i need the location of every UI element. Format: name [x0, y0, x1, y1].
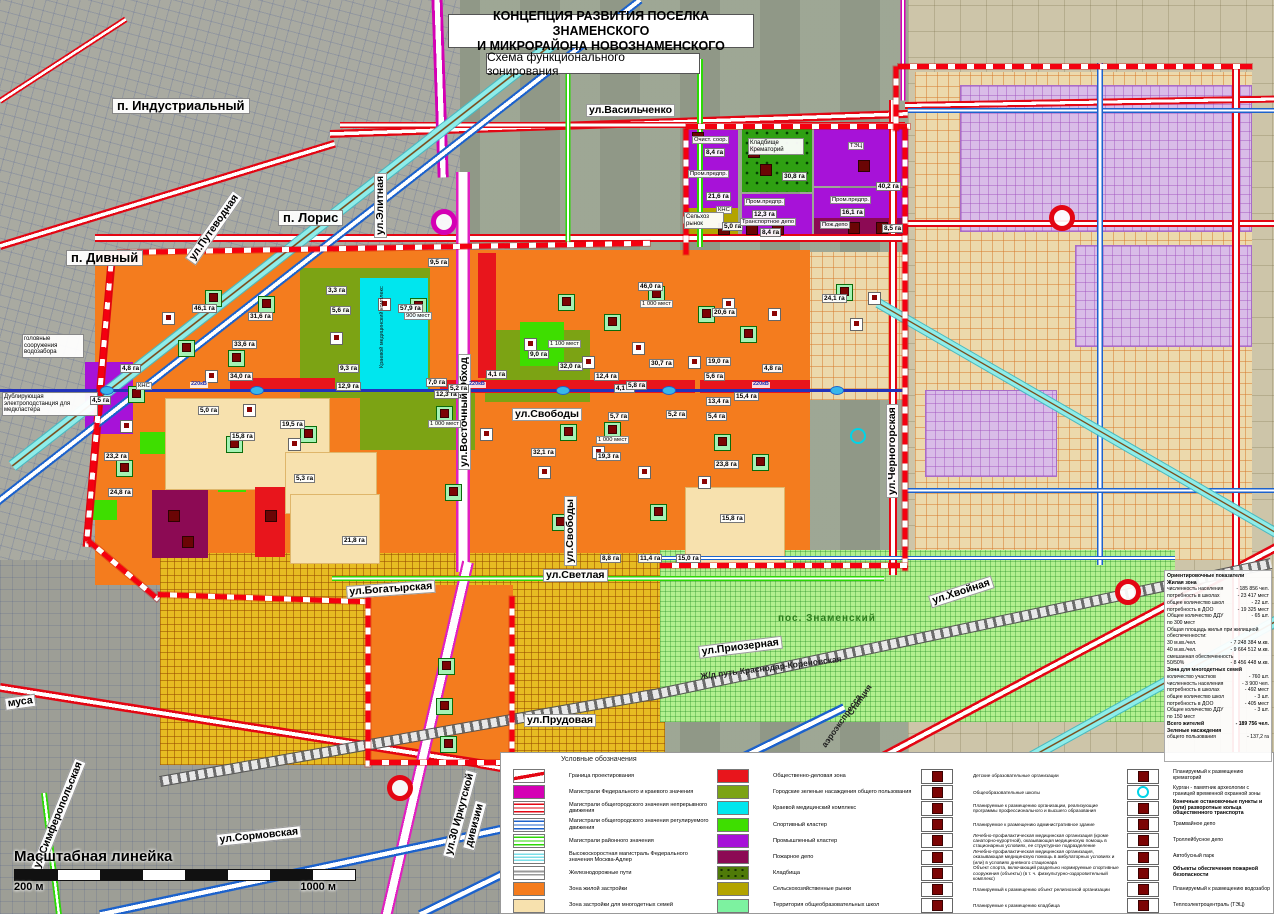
legend-swatch — [717, 899, 749, 913]
legend-icon-box — [1127, 769, 1159, 784]
map-label: Дублирующая электроподстанция для медкла… — [2, 392, 98, 416]
facility-icon — [848, 222, 860, 234]
legend-swatch — [513, 801, 545, 815]
kindergarten-icon — [582, 356, 595, 369]
road-blue — [908, 108, 1274, 113]
road-blue — [660, 556, 1175, 560]
scale-left-label: 200 м — [14, 881, 44, 893]
legend-item: Объекты обеспечения пожарной безопасност… — [1127, 865, 1271, 881]
map-label: 5,6 га — [704, 372, 725, 381]
stat-line: потребность в школах- 23 417 мест — [1167, 593, 1269, 600]
stat-line: Зона для многодетных семей — [1167, 667, 1269, 674]
legend-swatch — [717, 850, 749, 864]
map-label: ул.Черногорская — [886, 404, 899, 498]
stat-value: - 760 шт. — [1249, 674, 1269, 681]
map-label: 220кВ — [752, 382, 770, 388]
object-icon — [932, 852, 943, 863]
legend-icon-box — [921, 850, 953, 865]
object-icon — [932, 803, 943, 814]
school-icon — [714, 434, 731, 451]
stat-line: общее количество школ- 22 шт. — [1167, 600, 1269, 607]
legend-swatch — [717, 769, 749, 783]
legend-icon-box — [1127, 850, 1159, 865]
legend-item: Краевой медицинский комплекс — [717, 800, 917, 816]
kindergarten-icon — [698, 476, 711, 489]
stat-label: по 300 мест — [1167, 620, 1195, 627]
stat-value: - 137,2 га — [1247, 734, 1269, 741]
legend-label: Магистрали Федерального и краевого значе… — [569, 789, 693, 795]
map-title-box: КОНЦЕПЦИЯ РАЗВИТИЯ ПОСЕЛКА ЗНАМЕНСКОГО И… — [448, 14, 754, 48]
stat-label: потребность в ДОО — [1167, 701, 1213, 708]
map-label: 9,5 га — [428, 258, 449, 267]
object-icon — [1138, 900, 1149, 911]
stat-line: Общая площадь жилья при жилищной обеспеч… — [1167, 627, 1269, 640]
scale-segment — [143, 870, 186, 880]
legend-icon-box — [921, 882, 953, 897]
map-label: ул.Прудовая — [524, 714, 596, 727]
map-label: 33,6 га — [232, 340, 257, 349]
legend-label: Железнодорожные пути — [569, 870, 631, 876]
map-label: 1 000 мест — [596, 436, 629, 444]
object-icon — [1138, 803, 1149, 814]
scale-title: Масштабная линейка — [14, 848, 366, 865]
facility-icon — [858, 160, 870, 172]
planning-boundary-segment — [660, 563, 907, 568]
legend-icon-box — [1127, 817, 1159, 832]
stat-label: Общая площадь жилья при жилищной обеспеч… — [1167, 627, 1269, 640]
planning-boundary-segment — [903, 129, 908, 571]
map-label: пос. Знаменский — [778, 614, 876, 625]
legend-item: Планируемый к размещению крематорий — [1127, 768, 1271, 784]
map-label: 20,6 га — [712, 308, 737, 317]
map-label: Пож.депо — [820, 221, 850, 229]
legend-icon-box — [921, 866, 953, 881]
legend-swatch — [513, 882, 545, 896]
map-label: 19,3 га — [596, 452, 621, 461]
school-icon — [440, 736, 457, 753]
stat-label: Зеленые насаждения — [1167, 728, 1221, 735]
map-label: ул.Восточный Обход — [458, 354, 471, 470]
legend-swatch — [513, 769, 545, 783]
zone-red — [478, 253, 496, 378]
stat-label: потребность в ДОО — [1167, 607, 1213, 614]
legend-label: Планируемое к размещению административно… — [973, 822, 1095, 827]
legend-icon-box — [921, 785, 953, 800]
legend-icon-box — [921, 833, 953, 848]
map-label: ул.Элитная — [374, 173, 387, 238]
legend-item: Теплоэлектроцентраль (ТЭЦ) — [1127, 898, 1271, 914]
zone-beige — [290, 494, 380, 564]
legend-label: Лечебно-профилактическая медицинская орг… — [973, 849, 1123, 865]
map-label: п. Лорис — [278, 210, 343, 226]
legend-label: Детские образовательные организации — [973, 773, 1059, 778]
stat-label: общее количество школ — [1167, 600, 1224, 607]
map-label: Сельхоз рынок — [684, 212, 724, 229]
stat-line: Ориентировочные показатели — [1167, 573, 1269, 580]
scale-segment — [228, 870, 271, 880]
map-label: ул.Светлая — [543, 569, 608, 582]
map-label: 4,8 га — [120, 364, 141, 373]
object-icon — [1138, 819, 1149, 830]
legend-item: Железнодорожные пути — [513, 865, 711, 881]
legend-swatch — [513, 899, 545, 913]
legend-swatch — [717, 801, 749, 815]
stat-label: потребность в школах — [1167, 687, 1220, 694]
object-icon — [932, 771, 943, 782]
legend-label: Территория общеобразовательных школ — [773, 902, 879, 908]
legend-icon-box — [1127, 898, 1159, 913]
legend-item: Лечебно-профилактическая медицинская орг… — [921, 849, 1123, 865]
scale-segment — [15, 870, 58, 880]
map-label: 9,0 га — [528, 350, 549, 359]
map-label: Краевой медицинский комплекс — [380, 286, 386, 368]
stat-line: по 150 мест — [1167, 714, 1269, 721]
stat-line: Общее количество ДДУ- 3 шт. — [1167, 707, 1269, 714]
scale-segment — [313, 870, 356, 880]
map-label: головные сооружения водозабора — [22, 334, 84, 358]
stat-line: общее количество школ- 3 шт. — [1167, 694, 1269, 701]
interchange-ring-icon — [431, 209, 457, 235]
object-icon — [1138, 852, 1149, 863]
legend-label: Планируемые к размещению организации, ре… — [973, 803, 1123, 814]
kindergarten-icon — [330, 332, 343, 345]
legend-item: Конечные остановочные пункты и (или) раз… — [1127, 800, 1271, 816]
stat-line: потребность в школах- 492 мест — [1167, 687, 1269, 694]
legend-item: Магистрали общегородского значения регул… — [513, 817, 711, 833]
facility-icon — [168, 510, 180, 522]
school-icon — [436, 698, 453, 715]
legend-item: Общественно-деловая зона — [717, 768, 917, 784]
map-label: 5,6 га — [330, 306, 351, 315]
planning-boundary-segment — [684, 129, 689, 255]
kindergarten-icon — [868, 292, 881, 305]
stat-label: Ориентировочные показатели — [1167, 573, 1244, 580]
road-red — [889, 100, 897, 575]
map-label: 11,4 га — [638, 554, 662, 563]
school-icon — [258, 296, 275, 313]
legend-label: Общественно-деловая зона — [773, 773, 846, 779]
legend-item: Детские образовательные организации — [921, 768, 1123, 784]
legend-swatch — [513, 818, 545, 832]
school-icon — [604, 314, 621, 331]
interchange-ring-icon — [387, 775, 413, 801]
stat-value: - 9 664 512 м.кв. — [1231, 647, 1269, 654]
map-label: 7,0 га — [426, 378, 447, 387]
interchange-ring-icon — [1115, 579, 1141, 605]
legend-item: Граница проектирования — [513, 768, 711, 784]
school-icon — [558, 294, 575, 311]
legend-label: Трамвайное депо — [1173, 822, 1215, 828]
stat-line: Жилая зона — [1167, 580, 1269, 587]
legend-column-transport: Планируемый к размещению крематорийКурга… — [1127, 768, 1271, 914]
zone-lav — [925, 390, 1057, 477]
stat-label: количество участков — [1167, 674, 1216, 681]
legend-item: Трамвайное депо — [1127, 817, 1271, 833]
map-label: Транспортное депо — [740, 218, 796, 226]
legend-item: Пожарное депо — [717, 849, 917, 865]
map-label: 21,8 га — [342, 536, 367, 545]
legend-label: Спортивный кластер — [773, 822, 827, 828]
legend-label: Промышленный кластер — [773, 838, 837, 844]
legend-label: Объект спорта, включающий раздельно норм… — [973, 865, 1123, 881]
map-label: 24,1 га — [822, 294, 847, 303]
legend-icon-box — [1127, 801, 1159, 816]
map-subtitle-box: Схема функционального зонирования — [486, 53, 700, 74]
legend-label: Сельскохозяйственные рынки — [773, 886, 851, 892]
map-label: 32,1 га — [531, 448, 556, 457]
pond-icon — [250, 386, 264, 395]
legend-label: Автобусный парк — [1173, 854, 1214, 860]
object-icon — [932, 819, 943, 830]
kindergarten-icon — [638, 466, 651, 479]
kindergarten-icon — [243, 404, 256, 417]
stat-line: Всего жителей- 189 756 чел. — [1167, 721, 1269, 728]
zone-cyan — [360, 278, 428, 390]
legend-item: Территория общеобразовательных школ — [717, 898, 917, 914]
legend-label: Высокоскоростная магистраль Федерального… — [569, 851, 711, 864]
legend-label: Магистрали районного значения — [569, 838, 654, 844]
school-icon — [740, 326, 757, 343]
legend-item: Зона жилой застройки — [513, 881, 711, 897]
legend-item: Спортивный кластер — [717, 817, 917, 833]
stat-value: - 7 248 384 м.кв. — [1231, 640, 1269, 647]
stat-line: количество участков- 760 шт. — [1167, 674, 1269, 681]
legend-column-zones: Общественно-деловая зонаГородские зелены… — [717, 768, 917, 914]
stat-label: Общее количество ДДУ — [1167, 613, 1223, 620]
map-label: ТЭЦ — [848, 142, 864, 150]
map-label: Пром.предпр. — [830, 196, 871, 204]
map-label: ул.Васильченко — [586, 104, 675, 117]
stat-line: Зеленые насаждения — [1167, 728, 1269, 735]
object-icon — [1138, 835, 1149, 846]
legend-label: Городские зеленые насаждения общего поль… — [773, 789, 911, 795]
map-label: 15,8 га — [720, 514, 745, 523]
map-label: 21,6 га — [706, 192, 731, 201]
stat-value: - 185 856 чел. — [1236, 586, 1269, 593]
kindergarten-icon — [480, 428, 493, 441]
map-label: 8,5 га — [882, 224, 903, 233]
planning-boundary-segment — [894, 67, 899, 131]
stat-line: численность населения- 3 900 чел. — [1167, 681, 1269, 688]
map-label: 32,0 га — [558, 362, 583, 371]
legend-icon-box — [1127, 833, 1159, 848]
stat-label: 30 м.кв./чел. — [1167, 640, 1196, 647]
legend: Условные обозначения Граница проектирова… — [500, 752, 1274, 914]
scale-labels: 200 м 1000 м — [14, 881, 366, 893]
map-label: 12,9 га — [336, 382, 361, 391]
object-icon — [932, 835, 943, 846]
legend-label: Теплоэлектроцентраль (ТЭЦ) — [1173, 903, 1245, 909]
map-label: 5,4 га — [706, 412, 727, 421]
map-label: 15,4 га — [734, 392, 759, 401]
stat-value: - 65 шт. — [1252, 613, 1269, 620]
school-icon — [438, 658, 455, 675]
legend-item: Зона застройки для многодетных семей — [513, 898, 711, 914]
map-label: 4,1 га — [486, 370, 507, 379]
stat-line: численность населения- 185 856 чел. — [1167, 586, 1269, 593]
map-label: 3,3 га — [326, 286, 347, 295]
object-icon — [932, 787, 943, 798]
legend-icon-box — [1127, 866, 1159, 881]
legend-label: Планируемый к размещению объект религиоз… — [973, 887, 1110, 892]
stat-line: потребность в ДОО- 19 325 мест — [1167, 607, 1269, 614]
map-label: 15,8 га — [230, 432, 255, 441]
legend-icon-box — [1127, 882, 1159, 897]
school-icon — [650, 504, 667, 521]
legend-icon-box — [921, 801, 953, 816]
pond-icon — [100, 386, 114, 395]
legend-swatch — [513, 785, 545, 799]
legend-swatch — [513, 850, 545, 864]
legend-label: Планируемый к размещению крематорий — [1173, 770, 1271, 782]
kindergarten-icon — [850, 318, 863, 331]
scale-ruler — [14, 869, 356, 881]
stat-value: - 189 756 чел. — [1236, 721, 1269, 728]
facility-icon — [182, 536, 194, 548]
legend-item: Высокоскоростная магистраль Федерального… — [513, 849, 711, 865]
legend-item: Кладбища — [717, 865, 917, 881]
legend-column-objects: Детские образовательные организацииОбщео… — [921, 768, 1123, 914]
map-label: 220кВ — [468, 382, 486, 388]
map-label: 5,8 га — [626, 381, 647, 390]
map-label: 5,7 га — [608, 412, 629, 421]
school-icon — [445, 484, 462, 501]
pond-icon — [830, 386, 844, 395]
map-label: 40,2 га — [876, 182, 901, 191]
map-subtitle: Схема функционального зонирования — [487, 50, 699, 78]
map-label: 23,2 га — [104, 452, 129, 461]
legend-item: Планируемые к размещению организации, ре… — [921, 800, 1123, 816]
legend-column-lines: Граница проектированияМагистрали Федерал… — [513, 768, 711, 914]
road-blue — [905, 488, 1274, 493]
legend-item: Сельскохозяйственные рынки — [717, 881, 917, 897]
scale-segment — [58, 870, 101, 880]
map-label: Кладбище Крематорий — [748, 138, 804, 155]
school-icon — [116, 460, 133, 477]
legend-item: Лечебно-профилактическая медицинская орг… — [921, 833, 1123, 849]
stat-label: Зона для многодетных семей — [1167, 667, 1242, 674]
map-label: 4,8 га — [762, 364, 783, 373]
stat-value: - 405 мест — [1245, 701, 1269, 708]
map-label: Очист. соор. — [692, 136, 729, 144]
legend-item: Магистрали общегородского значения непре… — [513, 800, 711, 816]
stat-line: 40 м.кв./чел.- 9 664 512 м.кв. — [1167, 647, 1269, 654]
scale-segment — [270, 870, 313, 880]
legend-label: Магистрали общегородского значения непре… — [569, 802, 711, 815]
legend-label: Планируемые к размещению кладбища — [973, 903, 1060, 908]
planning-boundary-segment — [686, 124, 910, 129]
stat-line: потребность в ДОО- 405 мест — [1167, 701, 1269, 708]
kindergarten-icon — [162, 312, 175, 325]
stat-line: Общее количество ДДУ- 65 шт. — [1167, 613, 1269, 620]
legend-label: Объекты обеспечения пожарной безопасност… — [1173, 867, 1271, 879]
legend-item: Троллейбусное депо — [1127, 833, 1271, 849]
legend-item: Планируемый к размещению объект религиоз… — [921, 881, 1123, 897]
legend-item: Промышленный кластер — [717, 833, 917, 849]
legend-swatch — [513, 866, 545, 880]
legend-item: Автобусный парк — [1127, 849, 1271, 865]
kurgan-icon — [1137, 786, 1149, 798]
scale-bar: Масштабная линейка 200 м 1000 м — [14, 848, 366, 893]
map-label: 30,7 га — [649, 359, 674, 368]
stat-value: - 22 шт. — [1252, 600, 1269, 607]
map-label: 5,3 га — [294, 474, 315, 483]
road-green — [566, 61, 571, 246]
zone-red — [255, 487, 285, 557]
map-label: КНС — [136, 382, 152, 390]
legend-icon-box — [921, 769, 953, 784]
map-label: Пром.предпр. — [744, 198, 785, 206]
legend-item: Магистрали Федерального и краевого значе… — [513, 784, 711, 800]
school-icon — [560, 424, 577, 441]
map-label: 9,3 га — [338, 364, 359, 373]
stat-value: - 23 417 мест — [1238, 593, 1269, 600]
legend-label: Планируемый к размещению водозабор — [1173, 887, 1270, 893]
scale-segment — [185, 870, 228, 880]
stat-value: - 3 900 чел. — [1242, 681, 1269, 688]
legend-icon-box — [921, 898, 953, 913]
stat-label: численность населения — [1167, 586, 1223, 593]
legend-item: Планируемые к размещению кладбища — [921, 898, 1123, 914]
legend-header: Условные обозначения — [561, 756, 637, 763]
map-label: 19,0 га — [706, 357, 731, 366]
legend-label: Лечебно-профилактическая медицинская орг… — [973, 833, 1123, 849]
legend-label: Кладбища — [773, 870, 800, 876]
school-icon — [752, 454, 769, 471]
map-label: ул.Свободы — [512, 408, 582, 421]
stat-label: смешанная обеспеченность — [1167, 654, 1233, 661]
zone-purple2 — [152, 490, 208, 558]
planning-boundary-segment — [898, 64, 1252, 69]
map-label: 220кВ — [190, 382, 208, 388]
legend-item: Планируемое к размещению административно… — [921, 817, 1123, 833]
legend-item: Объект спорта, включающий раздельно норм… — [921, 865, 1123, 881]
school-icon — [228, 350, 245, 367]
map-label: п. Дивный — [66, 250, 143, 266]
map-label: 1 000 мест — [640, 300, 673, 308]
object-icon — [1138, 771, 1149, 782]
map-label: 19,5 га — [280, 420, 305, 429]
map-label: 1 100 мест — [548, 340, 581, 348]
map-label: 900 мест — [404, 312, 432, 320]
map-label: 5,2 га — [448, 384, 469, 393]
zone-green — [93, 500, 117, 520]
kindergarten-icon — [632, 342, 645, 355]
kindergarten-icon — [120, 420, 133, 433]
zoning-map-page: п. Индустриальныйп. Лорисп. Дивныйул.Вас… — [0, 0, 1274, 914]
stat-line: 30 м.кв./чел.- 7 248 384 м.кв. — [1167, 640, 1269, 647]
legend-item: Курган - памятник археологии с границей … — [1127, 784, 1271, 800]
legend-swatch — [717, 882, 749, 896]
kindergarten-icon — [288, 438, 301, 451]
scale-segment — [100, 870, 143, 880]
school-icon — [178, 340, 195, 357]
map-label: 8,4 га — [704, 148, 725, 157]
stat-value: - 492 мест — [1245, 687, 1269, 694]
object-icon — [932, 884, 943, 895]
map-label: Пром.предпр. — [688, 170, 729, 178]
map-label: 23,8 га — [714, 460, 739, 469]
legend-label: Пожарное депо — [773, 854, 813, 860]
legend-swatch — [717, 818, 749, 832]
stat-value: - 19 325 мест — [1238, 607, 1269, 614]
map-label: 1 000 мест — [428, 420, 461, 428]
legend-swatch — [717, 834, 749, 848]
interchange-ring-icon — [1049, 205, 1075, 231]
stat-label: Всего жителей — [1167, 721, 1204, 728]
map-label: 5,2 га — [666, 410, 687, 419]
map-label: ул.Свободы — [564, 496, 577, 566]
